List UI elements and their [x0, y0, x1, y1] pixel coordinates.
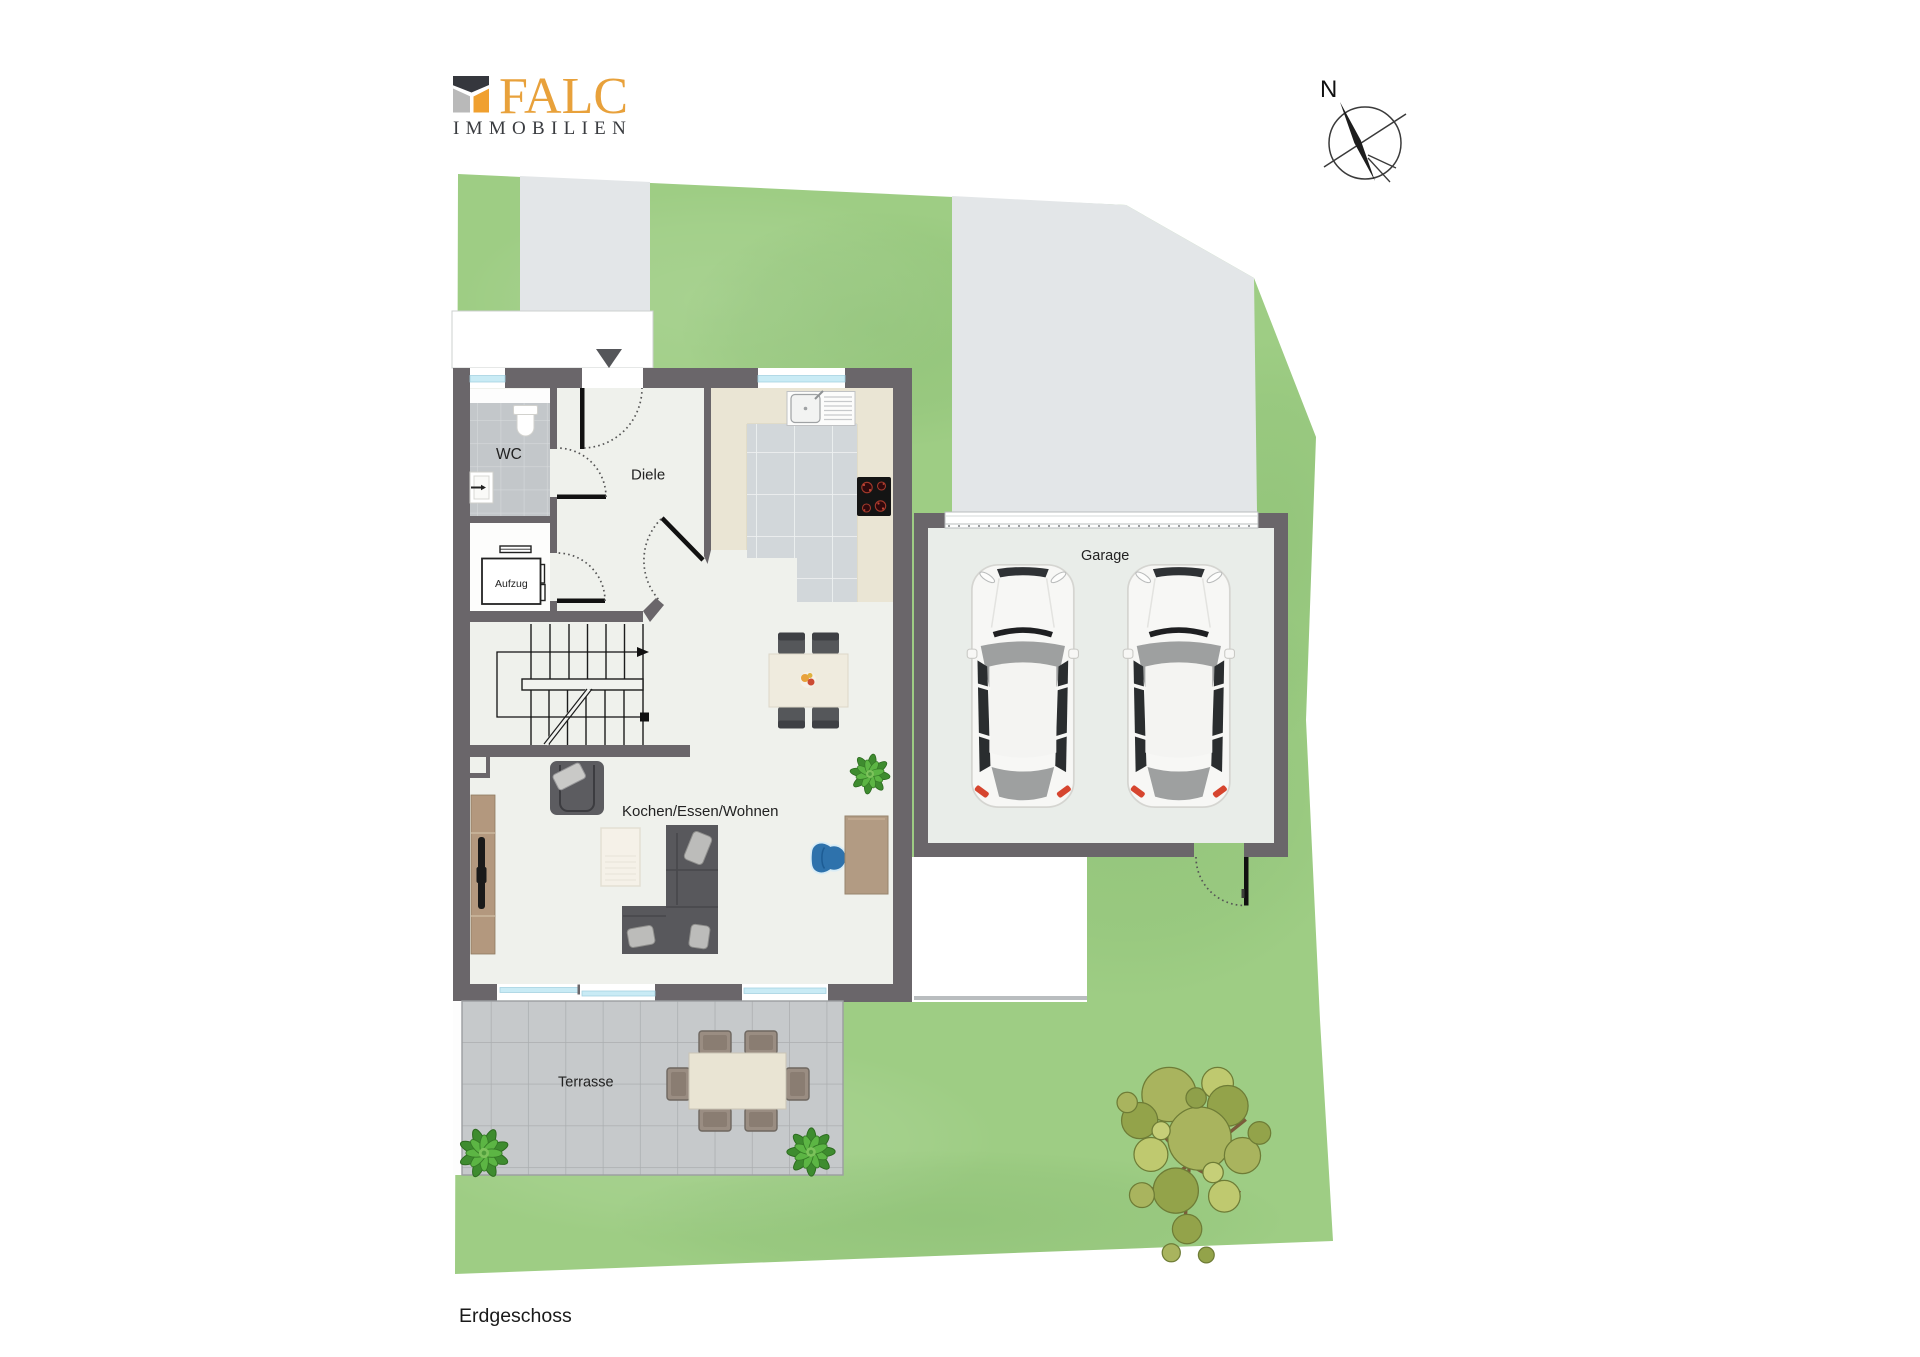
svg-text:Terrasse: Terrasse [558, 1075, 614, 1091]
svg-text:Diele: Diele [631, 467, 665, 484]
svg-text:WC: WC [496, 446, 522, 463]
svg-text:Erdgeschoss: Erdgeschoss [459, 1305, 572, 1327]
svg-text:N: N [1320, 76, 1337, 103]
svg-text:Aufzug: Aufzug [495, 578, 528, 590]
svg-text:IMMOBILIEN: IMMOBILIEN [453, 118, 632, 139]
svg-text:Kochen/Essen/Wohnen: Kochen/Essen/Wohnen [622, 803, 779, 820]
svg-text:FALC: FALC [499, 68, 628, 125]
svg-text:Garage: Garage [1081, 548, 1129, 564]
